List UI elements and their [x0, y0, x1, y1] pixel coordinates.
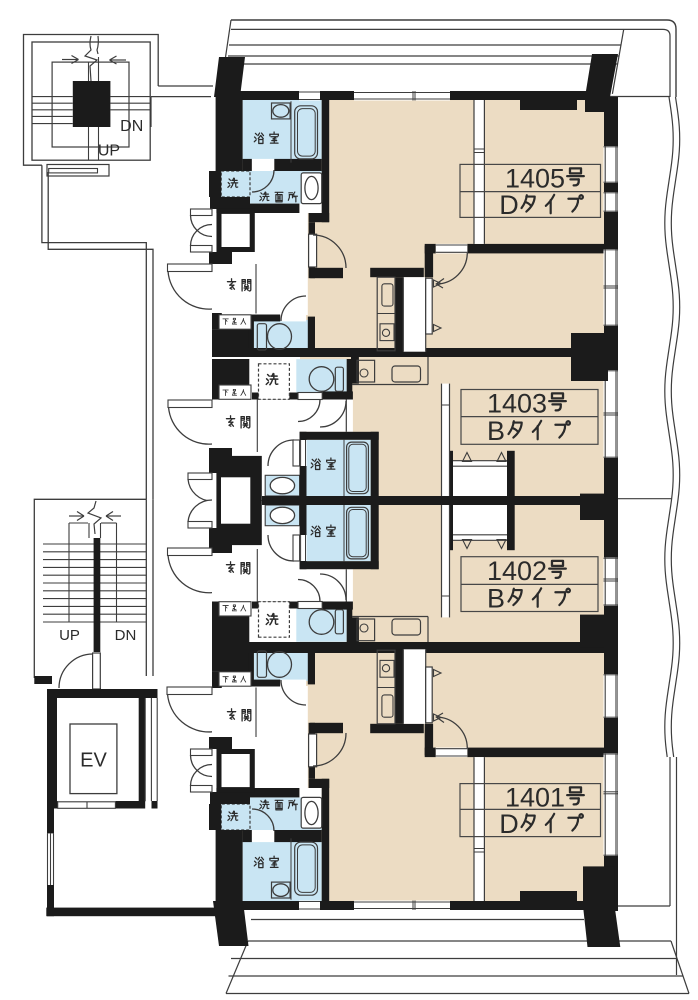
- svg-text:D: D: [499, 809, 519, 839]
- svg-text:UP: UP: [59, 627, 80, 644]
- svg-text:DN: DN: [120, 118, 143, 135]
- svg-text:DN: DN: [115, 627, 137, 644]
- svg-text:UP: UP: [98, 143, 120, 160]
- svg-text:1401: 1401: [505, 783, 565, 813]
- svg-text:D: D: [499, 190, 519, 220]
- svg-text:B: B: [487, 416, 505, 446]
- svg-text:1405: 1405: [505, 164, 565, 194]
- svg-text:B: B: [487, 584, 505, 614]
- svg-text:EV: EV: [80, 750, 107, 772]
- svg-text:1403: 1403: [487, 389, 547, 419]
- svg-text:1402: 1402: [487, 556, 547, 586]
